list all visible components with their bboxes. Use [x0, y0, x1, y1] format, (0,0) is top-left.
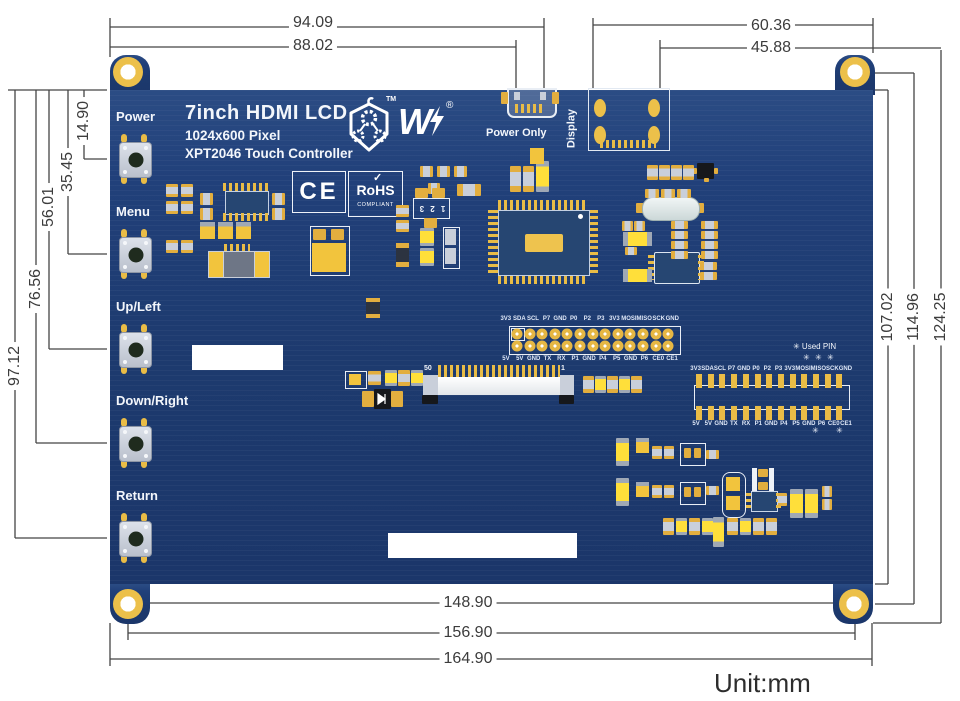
smd-rh [454, 166, 467, 177]
gpio-pin-label: SDA [513, 316, 527, 324]
gpio-pin-label: 3V3 [690, 366, 701, 374]
dimension-label: 94.09 [289, 14, 337, 32]
crystal-oscillator [642, 197, 700, 221]
used-pin-note: ✳ Used PIN [793, 343, 836, 351]
button-label: Down/Right [116, 394, 188, 407]
smd-rh [701, 241, 718, 249]
gpio-pin [512, 329, 523, 340]
gpio-pin [575, 329, 586, 340]
ce-label: CE [293, 178, 345, 206]
smd-sq [726, 477, 740, 491]
smd-rh [671, 221, 688, 229]
qfp-ic-body [498, 210, 590, 276]
smd-sg [636, 482, 649, 497]
qfp-pins-left [488, 210, 498, 274]
mounting-hole [113, 589, 143, 619]
gpio-pin-label: RX [740, 421, 752, 429]
rohs-compliant-label: COMPLIANT [349, 202, 402, 208]
smd-gpio-pad [801, 374, 807, 388]
gpio-pin [562, 329, 573, 340]
gpio-pin-label: P4 [596, 356, 610, 364]
diode-pad [391, 391, 403, 407]
board-cutout [388, 533, 577, 558]
smd-gp [432, 188, 445, 198]
smd-rv [778, 493, 787, 506]
trademark-symbol: TM [386, 96, 396, 103]
smd-gp [415, 188, 428, 198]
dimension-label: 156.90 [440, 624, 497, 642]
ic-123-outline: 1 2 3 [413, 198, 450, 219]
smd-rh [200, 208, 213, 220]
smd-sg [218, 222, 233, 239]
ic-123-marking: 1 2 3 [414, 204, 449, 212]
smd-rv [396, 205, 409, 217]
gpio-pin-label: GND [737, 366, 750, 374]
smd-gpio-pad [731, 406, 737, 420]
gpio-pin [524, 341, 535, 352]
inductor-pad [313, 229, 326, 240]
smd-gp [684, 448, 691, 458]
smd-rh [701, 231, 718, 239]
board-resolution: 1024x600 Pixel [185, 129, 280, 143]
smd-cyh [623, 232, 652, 246]
lcd-dimension-diagram: 7inch HDMI LCD 1024x600 Pixel XPT2046 To… [0, 0, 960, 701]
gpio-pin-label: TX [541, 356, 555, 364]
smd-rh [671, 231, 688, 239]
qfp-center-pad [525, 234, 563, 252]
diode-symbol-icon [374, 389, 391, 409]
smd-gpio-pad [766, 374, 772, 388]
smd-sg [636, 438, 649, 453]
power-component-pad [255, 252, 269, 277]
smd-cy [702, 518, 713, 535]
power-component-pins [224, 244, 250, 251]
display-label: Display [567, 105, 578, 153]
gpio-pin [638, 341, 649, 352]
smd-rh [622, 221, 633, 231]
gpio-pin-label: 3V3 [608, 316, 622, 324]
dimension-label: 76.56 [27, 265, 45, 313]
smd-dge [366, 298, 380, 318]
button-label: Up/Left [116, 300, 161, 313]
ffc-latch [559, 395, 574, 404]
gpio-pin [587, 341, 598, 352]
lightning-bolt-icon [430, 106, 446, 136]
power-only-label: Power Only [486, 128, 547, 139]
smd-rv [396, 220, 409, 232]
smd-gpio-pad [790, 374, 796, 388]
smd-gpio-pad [696, 406, 702, 420]
gpio-pin-label: GND [527, 356, 541, 364]
tactile-button-down-right [119, 426, 152, 462]
mounting-hole [840, 57, 870, 87]
smd-cy [790, 489, 803, 518]
gpio-pin [625, 341, 636, 352]
smd-rh [457, 184, 481, 196]
gpio-pin [562, 341, 573, 352]
gpio-pin [600, 329, 611, 340]
gpio-pin-label: MOSI [795, 366, 810, 374]
smd-cy [595, 376, 606, 393]
used-pin-asterisk: ✳ [836, 427, 843, 435]
smd-rv [166, 184, 178, 197]
smd-cy [420, 248, 434, 266]
tssop-pins [223, 183, 269, 191]
smd-gpio-pad [696, 374, 702, 388]
smd-cy [616, 438, 629, 466]
dimension-label: 60.36 [747, 17, 795, 35]
gpio-pin-label: RX [554, 356, 568, 364]
smd-rv [510, 166, 521, 192]
smd-rv [664, 485, 674, 498]
gpio-pin-label: P2 [580, 316, 594, 324]
smd-rh [700, 272, 717, 280]
gpio-pin-label: SDA [701, 366, 714, 374]
smd-gp [694, 448, 701, 458]
gpio-pin [549, 329, 560, 340]
smd-rh [200, 193, 213, 205]
smd-rh [822, 486, 832, 497]
gpio-pin-label: CE0 [651, 356, 665, 364]
smd-rh [420, 166, 433, 177]
smd-rh [701, 221, 718, 229]
gpio-pin-label: MOSI [621, 316, 636, 324]
smd-rh [822, 499, 832, 510]
smd-rh [700, 262, 717, 270]
smd-gpio-pad [836, 406, 842, 420]
gpio-pin-label: P2 [762, 366, 773, 374]
gpio-pin-label: GND [553, 316, 567, 324]
smd-rv [181, 201, 193, 214]
smd-rv [671, 165, 682, 180]
gpio-pin-label: 5V [513, 356, 527, 364]
gpio-pin-label: P7 [726, 366, 737, 374]
dimension-label: 148.90 [440, 594, 497, 612]
gpio-pin-label: MISO [811, 366, 826, 374]
power-component-pad [209, 252, 223, 277]
gpio-pin-label: TX [728, 421, 740, 429]
smd-cy [411, 370, 423, 386]
gpio-pin-label: GND [624, 356, 638, 364]
gpio-pin [587, 329, 598, 340]
smd-rv [631, 376, 642, 393]
smd-cy [420, 228, 434, 246]
button-cap [128, 153, 143, 168]
qfp-pins-top [498, 200, 588, 210]
smd-cy [676, 518, 687, 535]
waveshare-panda-icon [342, 96, 396, 160]
smd-gpio-pad [778, 374, 784, 388]
gpio-pin-label: GND [764, 421, 777, 429]
smd-gpio-pad [801, 406, 807, 420]
smd-bottom-labels: 5V5VGNDTXRXP1GNDP4P5GNDP6CE0CE1 [690, 421, 852, 429]
button-label: Menu [116, 205, 150, 218]
tactile-button-return [119, 521, 152, 557]
waveshare-wordmark: W [398, 104, 432, 140]
hdmi-pad [594, 99, 606, 117]
smd-gpio-pad [743, 406, 749, 420]
smd-sg [200, 222, 215, 239]
gpio-pin-label: SCK [826, 366, 839, 374]
tactile-button-up-left [119, 332, 152, 368]
power-component-body [224, 252, 254, 277]
mounting-hole [113, 57, 143, 87]
used-pin-asterisk: ✳ [827, 354, 834, 362]
gpio-pin-label: P7 [540, 316, 554, 324]
smd-rv [368, 371, 381, 385]
dimension-label: 88.02 [289, 37, 337, 55]
smd-rv [523, 166, 534, 192]
diode-body [374, 389, 391, 409]
smd-gpio-pad [790, 406, 796, 420]
board-touch-controller: XPT2046 Touch Controller [185, 147, 353, 161]
button-cap [128, 343, 143, 358]
sot-ic-pins [746, 493, 751, 508]
registered-symbol: ® [446, 100, 453, 111]
gpio-pin [600, 341, 611, 352]
smd-rv [583, 376, 594, 393]
smd-sq [726, 496, 740, 510]
button-cap [128, 248, 143, 263]
tactile-button-power [119, 142, 152, 178]
ffc-latch [422, 395, 438, 404]
qfp-pin1-dot [578, 214, 583, 219]
gpio-pin-label: P1 [752, 421, 764, 429]
gpio-pin-label: P5 [790, 421, 802, 429]
gpio-pin [612, 341, 623, 352]
smd-gp [704, 178, 709, 182]
smd-rv [753, 518, 764, 535]
gpio-pin [625, 329, 636, 340]
gpio-pin-label: P5 [610, 356, 624, 364]
smd-gpio-pad [719, 406, 725, 420]
gpio-pin-label: GND [582, 356, 596, 364]
dimension-label: 107.02 [879, 289, 897, 346]
usb-pins [515, 104, 545, 113]
dimension-label: 164.90 [440, 650, 497, 668]
smd-rh [701, 251, 718, 259]
smd-rv [652, 485, 662, 498]
ffc-pins [438, 365, 560, 377]
smd-gpio-pad [836, 374, 842, 388]
smd-gpio-pad [813, 374, 819, 388]
gpio-pin-label: SCK [652, 316, 666, 324]
sot-ic [751, 491, 778, 512]
gpio-pin-label: P0 [750, 366, 761, 374]
smd-gpio-pad [719, 374, 725, 388]
smd-rh [706, 450, 719, 459]
ffc-end [423, 375, 438, 395]
smd-rh [625, 247, 637, 255]
dimension-label: 45.88 [747, 39, 795, 57]
smd-sq [349, 374, 361, 385]
usb-slot [514, 92, 520, 100]
gpio-pin [537, 329, 548, 340]
gpio-pin-label: MISO [637, 316, 652, 324]
mounting-hole [839, 589, 869, 619]
gpio-pin-label: GND [665, 316, 679, 324]
dimension-label: 97.12 [6, 342, 24, 390]
gpio-pin [663, 341, 674, 352]
smd-gr [445, 229, 456, 245]
button-cap [128, 437, 143, 452]
gpio-pin-label: 5V [499, 356, 513, 364]
ffc-pin1-label: 1 [561, 365, 565, 372]
unit-note: Unit:mm [714, 668, 811, 699]
smd-sg [236, 222, 251, 239]
inductor-pad [331, 229, 344, 240]
rohs-label: RoHS [349, 182, 402, 198]
smd-gpio-pad [755, 406, 761, 420]
smd-rv [166, 240, 178, 253]
smd-gpio-pad [708, 406, 714, 420]
smd-gr [445, 248, 456, 264]
smd-rv [659, 165, 670, 180]
smd-rh [671, 241, 688, 249]
button-label: Return [116, 489, 158, 502]
smd-gpio-pad [813, 406, 819, 420]
dimension-label: 14.90 [75, 97, 93, 145]
gpio-pin-label: 5V [702, 421, 714, 429]
used-pin-asterisk: ✳ [815, 354, 822, 362]
smd-rv [663, 518, 674, 535]
dimension-label: 35.45 [59, 148, 77, 196]
gpio-pin [537, 341, 548, 352]
gpio-pin-label: P0 [567, 316, 581, 324]
ffc-pin50-label: 50 [424, 365, 432, 372]
gpio-pin [512, 341, 523, 352]
sot23-transistor [697, 163, 714, 179]
gpio-pin [575, 341, 586, 352]
gpio-pin [549, 341, 560, 352]
smd-rh [671, 251, 688, 259]
gpio-pin [638, 329, 649, 340]
gpio-pin [524, 329, 535, 340]
tssop-ic [225, 191, 269, 215]
smd-gp [694, 487, 701, 497]
smd-rh [272, 208, 285, 220]
smd-rh [661, 189, 675, 198]
smd-rv [683, 165, 694, 180]
gpio-pin-label: 3V3 [784, 366, 795, 374]
smd-gpio-pad [825, 406, 831, 420]
dimension-label: 114.96 [905, 289, 923, 345]
smd-rh [437, 166, 450, 177]
dimension-label: 124.25 [932, 289, 950, 346]
board-cutout [192, 345, 283, 370]
gpio-pin [650, 329, 661, 340]
tssop-pins [223, 213, 269, 221]
smd-gp [684, 487, 691, 497]
waveshare-logo: TM W ® [342, 96, 458, 162]
smd-gpio-pad [766, 406, 772, 420]
button-label: Power [116, 110, 155, 123]
smd-rv [647, 165, 658, 180]
gpio-pin [663, 329, 674, 340]
smd-sq [530, 148, 544, 164]
smd-rh [272, 193, 285, 205]
smd-rh [677, 189, 691, 198]
gpio-pin-label: SCL [526, 316, 540, 324]
hdmi-pad [648, 99, 660, 117]
gpio-pin-label: P3 [594, 316, 608, 324]
sot23-leg [714, 168, 718, 174]
smd-rv [398, 370, 410, 386]
usb-slot [540, 92, 546, 100]
gpio-pin-label: 5V [690, 421, 702, 429]
gpio-pin-label: GND [714, 421, 727, 429]
ffc-end [560, 375, 574, 395]
smd-rv [664, 446, 674, 459]
smd-cy [713, 517, 724, 547]
gpio-pin-label: GND [839, 366, 852, 374]
tactile-button-menu [119, 237, 152, 273]
smd-rv [181, 240, 193, 253]
gpio-pin-label: CE1 [665, 356, 679, 364]
smd-dge [396, 243, 409, 267]
gpio-pin [650, 341, 661, 352]
smd-rv [766, 518, 777, 535]
smd-rv [689, 518, 700, 535]
gpio-pin-label: P1 [568, 356, 582, 364]
board-title: 7inch HDMI LCD [185, 103, 348, 123]
hdmi-pins [600, 140, 656, 148]
smd-rh [706, 486, 719, 495]
smd-rv [181, 184, 193, 197]
smd-rv [727, 518, 738, 535]
smd-gpio-pad [708, 374, 714, 388]
gpio-pin-label: 3V3 [499, 316, 513, 324]
inductor-body [312, 243, 346, 272]
smd-gpio-pad [755, 374, 761, 388]
smd-top-labels: 3V3SDASCLP7GNDP0P2P33V3MOSIMISOSCKGND [690, 366, 852, 374]
smd-rh [634, 221, 645, 231]
smd-cy [385, 370, 397, 386]
button-cap [128, 532, 143, 547]
ffc-body [438, 377, 560, 395]
ce-mark: CE [292, 171, 346, 213]
gpio-bottom-labels: 5V5VGNDTXRXP1GNDP4P5GNDP6CE0CE1 [499, 356, 679, 364]
gpio-pin [612, 329, 623, 340]
smd-rh [645, 189, 659, 198]
smd-cy [805, 489, 818, 518]
smd-gpio-pad [731, 374, 737, 388]
rohs-mark: ✓ RoHS COMPLIANT [348, 171, 403, 217]
dimension-label: 56.01 [40, 183, 58, 231]
smd-cy [616, 478, 629, 506]
smd-cy [740, 518, 751, 535]
gpio-pin-label: P6 [637, 356, 651, 364]
gpio-pin-label: P3 [773, 366, 784, 374]
smd-cyh [623, 269, 652, 282]
usb-pad [552, 92, 559, 104]
smd-gpio-pad [743, 374, 749, 388]
smd-rv [166, 201, 178, 214]
gpio-top-labels: 3V3SDASCLP7GNDP0P2P33V3MOSIMISOSCKGND [499, 316, 679, 324]
usb-pad [501, 92, 508, 104]
smd-cy [619, 376, 630, 393]
smd-rv [607, 376, 618, 393]
gpio-pin-label: SCL [714, 366, 726, 374]
gpio-pin-label: P4 [778, 421, 790, 429]
used-pin-asterisk: ✳ [803, 354, 810, 362]
smd-gpio-pad [778, 406, 784, 420]
smd-gpio-pad [825, 374, 831, 388]
diode-pad [362, 391, 374, 407]
smd-cy [536, 161, 549, 192]
ic-123-pad [424, 218, 437, 228]
used-pin-asterisk: ✳ [812, 427, 819, 435]
